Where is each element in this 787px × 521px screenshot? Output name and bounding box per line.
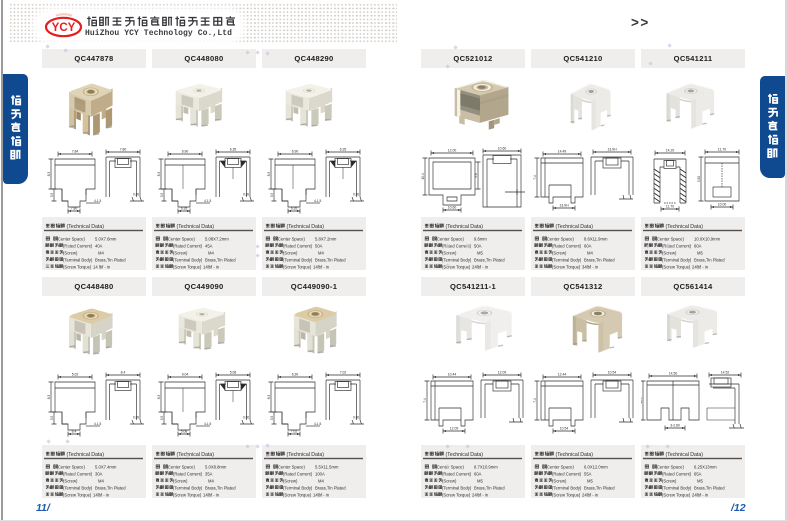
svg-text:8.3: 8.3 <box>267 172 271 177</box>
svg-text:0.80: 0.80 <box>353 193 359 197</box>
svg-text:YCY: YCY <box>52 22 76 34</box>
svg-text:50A: 50A <box>474 243 482 248</box>
svg-text:7.02: 7.02 <box>340 370 347 374</box>
svg-text:(Terminal Body): (Terminal Body) <box>283 257 313 262</box>
svg-text:4-1.5: 4-1.5 <box>204 199 211 203</box>
svg-text:12.09: 12.09 <box>498 370 507 374</box>
svg-text:(Terminal Body): (Terminal Body) <box>552 485 582 490</box>
svg-text:(Screw Torque): (Screw Torque) <box>63 264 92 269</box>
svg-text:8.3: 8.3 <box>47 172 51 177</box>
svg-text:6.25X13mm: 6.25X13mm <box>694 464 717 469</box>
svg-text:(Center Space): (Center Space) <box>436 236 465 241</box>
svg-text:24lbf - in: 24lbf - in <box>472 264 489 269</box>
svg-text:11.70: 11.70 <box>718 147 726 151</box>
svg-text:14.20: 14.20 <box>666 148 675 152</box>
svg-text:4-1.5: 4-1.5 <box>94 422 101 426</box>
svg-text:M4: M4 <box>318 478 324 483</box>
svg-text:(Screw): (Screw) <box>442 478 457 483</box>
svg-text:(Terminal Body): (Terminal Body) <box>283 485 313 490</box>
svg-text:(Technical Data): (Technical Data) <box>67 224 105 230</box>
svg-text:(Rated Current): (Rated Current) <box>442 471 472 476</box>
svg-text:0.80: 0.80 <box>243 193 249 197</box>
svg-text:(Center Space): (Center Space) <box>436 464 465 469</box>
svg-text:8.4: 8.4 <box>121 370 126 374</box>
svg-text:5.0X7.4mm: 5.0X7.4mm <box>95 464 117 469</box>
svg-text:(Technical Data): (Technical Data) <box>177 452 215 458</box>
svg-text:6.30: 6.30 <box>292 372 299 376</box>
svg-text:Brass,Tin Plated: Brass,Tin Plated <box>584 257 615 262</box>
svg-text:3.5: 3.5 <box>50 193 54 198</box>
svg-text:10.0X10.9mm: 10.0X10.9mm <box>694 236 721 241</box>
svg-text:4-1.5: 4-1.5 <box>314 422 321 426</box>
svg-text:35A: 35A <box>205 471 213 476</box>
svg-text:(Terminal Body): (Terminal Body) <box>63 485 93 490</box>
svg-text:4-1.5: 4-1.5 <box>204 422 211 426</box>
svg-text:(Screw): (Screw) <box>283 250 298 255</box>
svg-text:(Terminal Body): (Terminal Body) <box>442 257 472 262</box>
svg-text:13.9H: 13.9H <box>607 147 617 151</box>
svg-text:(Technical Data): (Technical Data) <box>666 224 704 230</box>
svg-text:M5: M5 <box>477 250 483 255</box>
svg-text:14 lbf - in: 14 lbf - in <box>93 264 111 269</box>
svg-text:11.70: 11.70 <box>666 204 674 208</box>
svg-text:(Screw): (Screw) <box>63 478 78 483</box>
svg-text:10.4: 10.4 <box>421 173 425 179</box>
svg-text:(Screw): (Screw) <box>662 478 677 483</box>
svg-text:5.02: 5.02 <box>72 372 79 376</box>
svg-text:10.60: 10.60 <box>498 146 507 150</box>
svg-text:M4: M4 <box>98 478 104 483</box>
svg-text:(Screw): (Screw) <box>662 250 677 255</box>
svg-text:6.35: 6.35 <box>340 147 347 151</box>
svg-text:12.44: 12.44 <box>558 372 567 376</box>
svg-text:Brass,Tin Plated: Brass,Tin Plated <box>694 257 725 262</box>
svg-text:(Terminal Body): (Terminal Body) <box>662 257 692 262</box>
svg-text:M4: M4 <box>318 250 324 255</box>
svg-text:6.90: 6.90 <box>182 149 189 153</box>
svg-text:(Screw Torque): (Screw Torque) <box>283 492 312 497</box>
svg-text:(Technical Data): (Technical Data) <box>556 452 594 458</box>
svg-text:10.44: 10.44 <box>448 372 457 376</box>
svg-text:10.00: 10.00 <box>718 202 727 206</box>
svg-text:(Center Space): (Center Space) <box>277 464 306 469</box>
svg-text:(Technical Data): (Technical Data) <box>177 224 215 230</box>
svg-text:(Screw Torque): (Screw Torque) <box>173 264 202 269</box>
svg-text:(Terminal Body): (Terminal Body) <box>442 485 472 490</box>
svg-text:(Screw): (Screw) <box>173 478 188 483</box>
svg-text:24lbf - in: 24lbf - in <box>692 264 709 269</box>
svg-text:6.90: 6.90 <box>292 149 299 153</box>
svg-text:M4: M4 <box>587 250 593 255</box>
svg-text:24lbf - in: 24lbf - in <box>472 492 489 497</box>
svg-text:0.80: 0.80 <box>243 416 249 420</box>
svg-text:8.7X10.9mm: 8.7X10.9mm <box>474 464 498 469</box>
svg-text:65A: 65A <box>694 471 702 476</box>
svg-text:(Center Space): (Center Space) <box>167 464 196 469</box>
svg-text:(Terminal Body): (Terminal Body) <box>173 485 203 490</box>
svg-text:5.08: 5.08 <box>230 370 237 374</box>
svg-text:7.4: 7.4 <box>423 398 427 403</box>
svg-text:(Rated Current): (Rated Current) <box>283 471 313 476</box>
svg-text:(Rated Current): (Rated Current) <box>662 471 692 476</box>
svg-text:7.4: 7.4 <box>533 175 537 180</box>
svg-text:24lbf - in: 24lbf - in <box>582 492 599 497</box>
svg-text:14lbf - in: 14lbf - in <box>313 264 330 269</box>
svg-text:(Screw Torque): (Screw Torque) <box>662 492 691 497</box>
svg-text:(Technical Data): (Technical Data) <box>446 224 484 230</box>
svg-text:(Center Space): (Center Space) <box>167 236 196 241</box>
svg-text:10.54: 10.54 <box>560 426 569 430</box>
svg-text:(Screw Torque): (Screw Torque) <box>552 264 581 269</box>
svg-text:(Center Space): (Center Space) <box>656 464 685 469</box>
svg-text:0.80: 0.80 <box>133 416 139 420</box>
svg-text:M5: M5 <box>477 478 483 483</box>
svg-text:(Rated Current): (Rated Current) <box>173 471 203 476</box>
svg-text:Brass,Tin Plated: Brass,Tin Plated <box>95 257 126 262</box>
svg-text:Brass,Tin Plated: Brass,Tin Plated <box>95 485 126 490</box>
svg-text:(Center Space): (Center Space) <box>546 236 575 241</box>
svg-text:(Technical Data): (Technical Data) <box>67 452 105 458</box>
svg-text:4-1.5: 4-1.5 <box>314 199 321 203</box>
svg-text:(Screw Torque): (Screw Torque) <box>173 492 202 497</box>
svg-text:(Terminal Body): (Terminal Body) <box>63 257 93 262</box>
svg-text:(Center Space): (Center Space) <box>546 464 575 469</box>
svg-text:7.02: 7.02 <box>291 429 298 433</box>
svg-text:(Screw Torque): (Screw Torque) <box>552 492 581 497</box>
svg-text:(Terminal Body): (Terminal Body) <box>552 257 582 262</box>
svg-text:0.80: 0.80 <box>133 193 139 197</box>
svg-text:7.84: 7.84 <box>72 149 79 153</box>
svg-text:Brass,Tin Plated: Brass,Tin Plated <box>205 485 236 490</box>
svg-text:14.50: 14.50 <box>669 371 678 375</box>
svg-text:3.5: 3.5 <box>160 416 164 421</box>
svg-text:(Screw): (Screw) <box>442 250 457 255</box>
svg-text:9.8: 9.8 <box>474 173 478 178</box>
svg-text:14lbf - in: 14lbf - in <box>93 492 110 497</box>
svg-text:M4: M4 <box>98 250 104 255</box>
svg-text:8.3: 8.3 <box>267 395 271 400</box>
svg-text:10.5: 10.5 <box>641 397 643 403</box>
svg-text:60A: 60A <box>694 243 702 248</box>
svg-text:(Screw Torque): (Screw Torque) <box>63 492 92 497</box>
svg-text:(Center Space): (Center Space) <box>277 236 306 241</box>
svg-text:3.5: 3.5 <box>50 416 54 421</box>
svg-text:6.35: 6.35 <box>291 206 298 210</box>
svg-text:(Center Space): (Center Space) <box>57 464 86 469</box>
svg-text:(Technical Data): (Technical Data) <box>287 224 325 230</box>
svg-text:45A: 45A <box>205 243 213 248</box>
svg-text:5.08X7.2mm: 5.08X7.2mm <box>205 236 229 241</box>
svg-text:9.6mm: 9.6mm <box>474 236 487 241</box>
svg-text:Brass,Tin Plated: Brass,Tin Plated <box>315 257 346 262</box>
svg-text:M4: M4 <box>208 478 214 483</box>
svg-text:(Rated Current): (Rated Current) <box>63 471 93 476</box>
svg-text:12.09: 12.09 <box>450 426 459 430</box>
svg-text:50A: 50A <box>315 243 323 248</box>
svg-text:12.00: 12.00 <box>448 148 457 152</box>
svg-text:Brass,Tin Plated: Brass,Tin Plated <box>584 485 615 490</box>
svg-text:(Screw Torque): (Screw Torque) <box>442 492 471 497</box>
svg-text:Brass,Tin Plated: Brass,Tin Plated <box>474 485 505 490</box>
svg-text:(Rated Current): (Rated Current) <box>173 243 203 248</box>
svg-text:(Technical Data): (Technical Data) <box>446 452 484 458</box>
svg-text:5.8X7.2mm: 5.8X7.2mm <box>315 236 337 241</box>
svg-text:6.0X12.0mm: 6.0X12.0mm <box>584 464 608 469</box>
svg-text:6.35: 6.35 <box>230 147 237 151</box>
svg-text:4-1.5: 4-1.5 <box>94 199 101 203</box>
svg-text:M4: M4 <box>208 250 214 255</box>
svg-text:(Rated Current): (Rated Current) <box>283 243 313 248</box>
svg-text:6.35: 6.35 <box>181 206 188 210</box>
svg-text:(Rated Current): (Rated Current) <box>552 471 582 476</box>
svg-text:60A: 60A <box>584 243 592 248</box>
svg-text:7.80: 7.80 <box>120 147 127 151</box>
svg-text:8.4: 8.4 <box>72 429 77 433</box>
svg-text:(Center Space): (Center Space) <box>57 236 86 241</box>
svg-text:40A: 40A <box>95 243 103 248</box>
svg-text:Brass,Tin Plated: Brass,Tin Plated <box>205 257 236 262</box>
svg-text:3.5: 3.5 <box>270 416 274 421</box>
svg-text:(Screw): (Screw) <box>552 478 567 483</box>
svg-text:55A: 55A <box>584 471 592 476</box>
svg-text:9.50: 9.50 <box>697 176 701 182</box>
svg-text:5.08: 5.08 <box>181 429 188 433</box>
svg-text:3-2.80: 3-2.80 <box>670 423 680 427</box>
svg-text:Brass,Tin Plated: Brass,Tin Plated <box>474 257 505 262</box>
svg-text:(Screw Torque): (Screw Torque) <box>283 264 312 269</box>
svg-text:7.80: 7.80 <box>71 206 78 210</box>
svg-text:5.0X7.6mm: 5.0X7.6mm <box>95 236 117 241</box>
svg-text:8.3: 8.3 <box>47 395 51 400</box>
svg-text:3.5: 3.5 <box>160 193 164 198</box>
svg-text:34lbf - in: 34lbf - in <box>582 264 599 269</box>
svg-text:60A: 60A <box>474 471 482 476</box>
svg-text:(Screw): (Screw) <box>283 478 298 483</box>
svg-text:(Center Space): (Center Space) <box>656 236 685 241</box>
svg-text:(Screw): (Screw) <box>552 250 567 255</box>
svg-text:5.5X11.5mm: 5.5X11.5mm <box>315 464 339 469</box>
svg-text:14lbf - in: 14lbf - in <box>203 492 220 497</box>
svg-text:10.54: 10.54 <box>608 370 617 374</box>
svg-text:Brass,Tin Plated: Brass,Tin Plated <box>315 485 346 490</box>
svg-text:(Screw): (Screw) <box>173 250 188 255</box>
svg-text:0.80: 0.80 <box>353 416 359 420</box>
svg-text:3.5: 3.5 <box>270 193 274 198</box>
svg-text:(Terminal Body): (Terminal Body) <box>662 485 692 490</box>
svg-text:100A: 100A <box>315 471 325 476</box>
svg-text:30A: 30A <box>95 471 103 476</box>
svg-text:(Technical Data): (Technical Data) <box>666 452 704 458</box>
svg-text:9.04: 9.04 <box>182 372 189 376</box>
svg-text:5.0X8.8mm: 5.0X8.8mm <box>205 464 227 469</box>
svg-text:(Technical Data): (Technical Data) <box>287 452 325 458</box>
svg-text:Brass,Tin Plated: Brass,Tin Plated <box>694 485 725 490</box>
svg-text:(Terminal Body): (Terminal Body) <box>173 257 203 262</box>
svg-text:14lbf - in: 14lbf - in <box>313 492 330 497</box>
svg-text:M5: M5 <box>697 478 703 483</box>
svg-text:8.6X11.9mm: 8.6X11.9mm <box>584 236 608 241</box>
svg-text:14lbf - in: 14lbf - in <box>203 264 220 269</box>
svg-text:8.3: 8.3 <box>157 172 161 177</box>
svg-text:10.60: 10.60 <box>448 205 457 209</box>
svg-text:24lbf - in: 24lbf - in <box>692 492 709 497</box>
svg-text:13.9H: 13.9H <box>559 203 569 207</box>
svg-text:M5: M5 <box>697 250 703 255</box>
svg-text:14.49: 14.49 <box>558 149 567 153</box>
svg-text:(Technical Data): (Technical Data) <box>556 224 594 230</box>
svg-text:(Rated Current): (Rated Current) <box>552 243 582 248</box>
svg-text:7.4: 7.4 <box>533 398 537 403</box>
svg-text:M5: M5 <box>587 478 593 483</box>
svg-text:(Screw Torque): (Screw Torque) <box>662 264 691 269</box>
svg-text:14.52: 14.52 <box>721 370 730 374</box>
svg-text:(Screw): (Screw) <box>63 250 78 255</box>
svg-text:8.3: 8.3 <box>157 395 161 400</box>
